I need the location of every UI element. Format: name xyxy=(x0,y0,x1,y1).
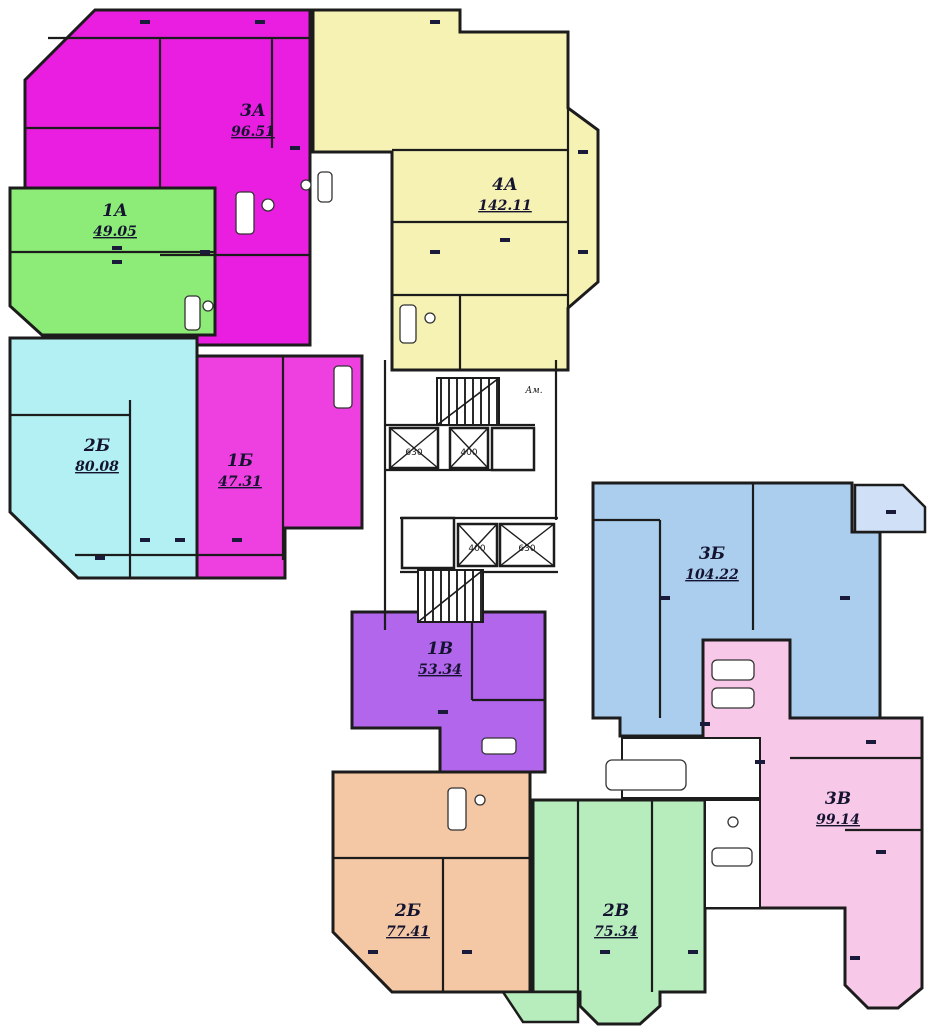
apartment-1b-area: 47.31 xyxy=(218,474,262,490)
floor-plan-page: 3А 96.51 4А 142.11 1А 49.05 2Б 80.08 1Б … xyxy=(0,0,928,1035)
bathtub xyxy=(236,192,254,234)
apartment-3a-area: 96.51 xyxy=(231,124,275,140)
floor-plan-svg: 3А 96.51 4А 142.11 1А 49.05 2Б 80.08 1Б … xyxy=(0,0,928,1035)
apartment-1a-code: 1А xyxy=(102,201,128,221)
apartment-3v-code: 3В xyxy=(825,789,851,809)
elevator-400-upper: 400 xyxy=(450,428,488,468)
core-annotation-label: Ам. xyxy=(524,386,542,396)
apartment-4a-area: 142.11 xyxy=(478,198,532,214)
apartment-2v-bay xyxy=(503,992,578,1022)
bathtub xyxy=(482,738,516,754)
elevator-630-upper-label: 630 xyxy=(405,448,422,458)
service-room-upper xyxy=(492,428,534,470)
apartment-1a-area: 49.05 xyxy=(93,224,137,240)
sink xyxy=(425,313,435,323)
sink xyxy=(203,301,213,311)
bathtub xyxy=(448,788,466,830)
apartment-2b-upper: 2Б 80.08 xyxy=(10,338,197,578)
apartment-3v-area: 99.14 xyxy=(816,812,860,828)
apartment-4a: 4А 142.11 xyxy=(313,10,598,370)
bathtub xyxy=(185,296,200,330)
apartment-2b-upper-region xyxy=(10,338,197,578)
sink xyxy=(728,817,738,827)
apartment-3b-balcony xyxy=(855,485,925,532)
elevator-630-lower: 630 xyxy=(500,524,554,566)
bathtub xyxy=(400,305,416,343)
apartment-4a-region xyxy=(313,10,598,370)
bathtub xyxy=(712,688,754,708)
bathtub xyxy=(334,366,352,408)
service-room-lower xyxy=(402,518,454,568)
bathtub xyxy=(606,760,686,790)
apartment-2v: 2В 75.34 xyxy=(503,800,705,1024)
sink xyxy=(475,795,485,805)
apartment-1v-area: 53.34 xyxy=(418,662,462,678)
apartment-2b-upper-area: 80.08 xyxy=(75,459,119,475)
bathtub xyxy=(318,172,332,202)
apartment-2b-upper-code: 2Б xyxy=(83,436,111,456)
apartment-3a-code: 3А xyxy=(240,101,266,121)
elevator-400-upper-label: 400 xyxy=(460,448,477,458)
elevator-400-lower-label: 400 xyxy=(468,544,485,554)
apartment-2b-lower: 2Б 77.41 xyxy=(333,772,530,992)
apartment-3b-code: 3Б xyxy=(699,544,726,564)
apartment-3b-area: 104.22 xyxy=(685,567,739,583)
elevator-400-lower: 400 xyxy=(458,524,497,566)
apartment-4a-code: 4А xyxy=(492,175,518,195)
apartment-2b-lower-area: 77.41 xyxy=(386,924,430,940)
core-lower: 400 630 xyxy=(402,518,554,622)
apartment-1v-code: 1В xyxy=(427,639,453,659)
bathtub xyxy=(712,848,752,866)
apartment-2v-area: 75.34 xyxy=(594,924,638,940)
apartment-2b-lower-region xyxy=(333,772,530,992)
apartment-2v-code: 2В xyxy=(602,901,629,921)
sink xyxy=(262,199,274,211)
sink xyxy=(301,180,311,190)
elevator-630-upper: 630 xyxy=(390,428,438,468)
bathtub xyxy=(712,660,754,680)
elevator-630-lower-label: 630 xyxy=(518,544,535,554)
apartment-2b-lower-code: 2Б xyxy=(394,901,422,921)
apartment-1b-code: 1Б xyxy=(227,451,254,471)
